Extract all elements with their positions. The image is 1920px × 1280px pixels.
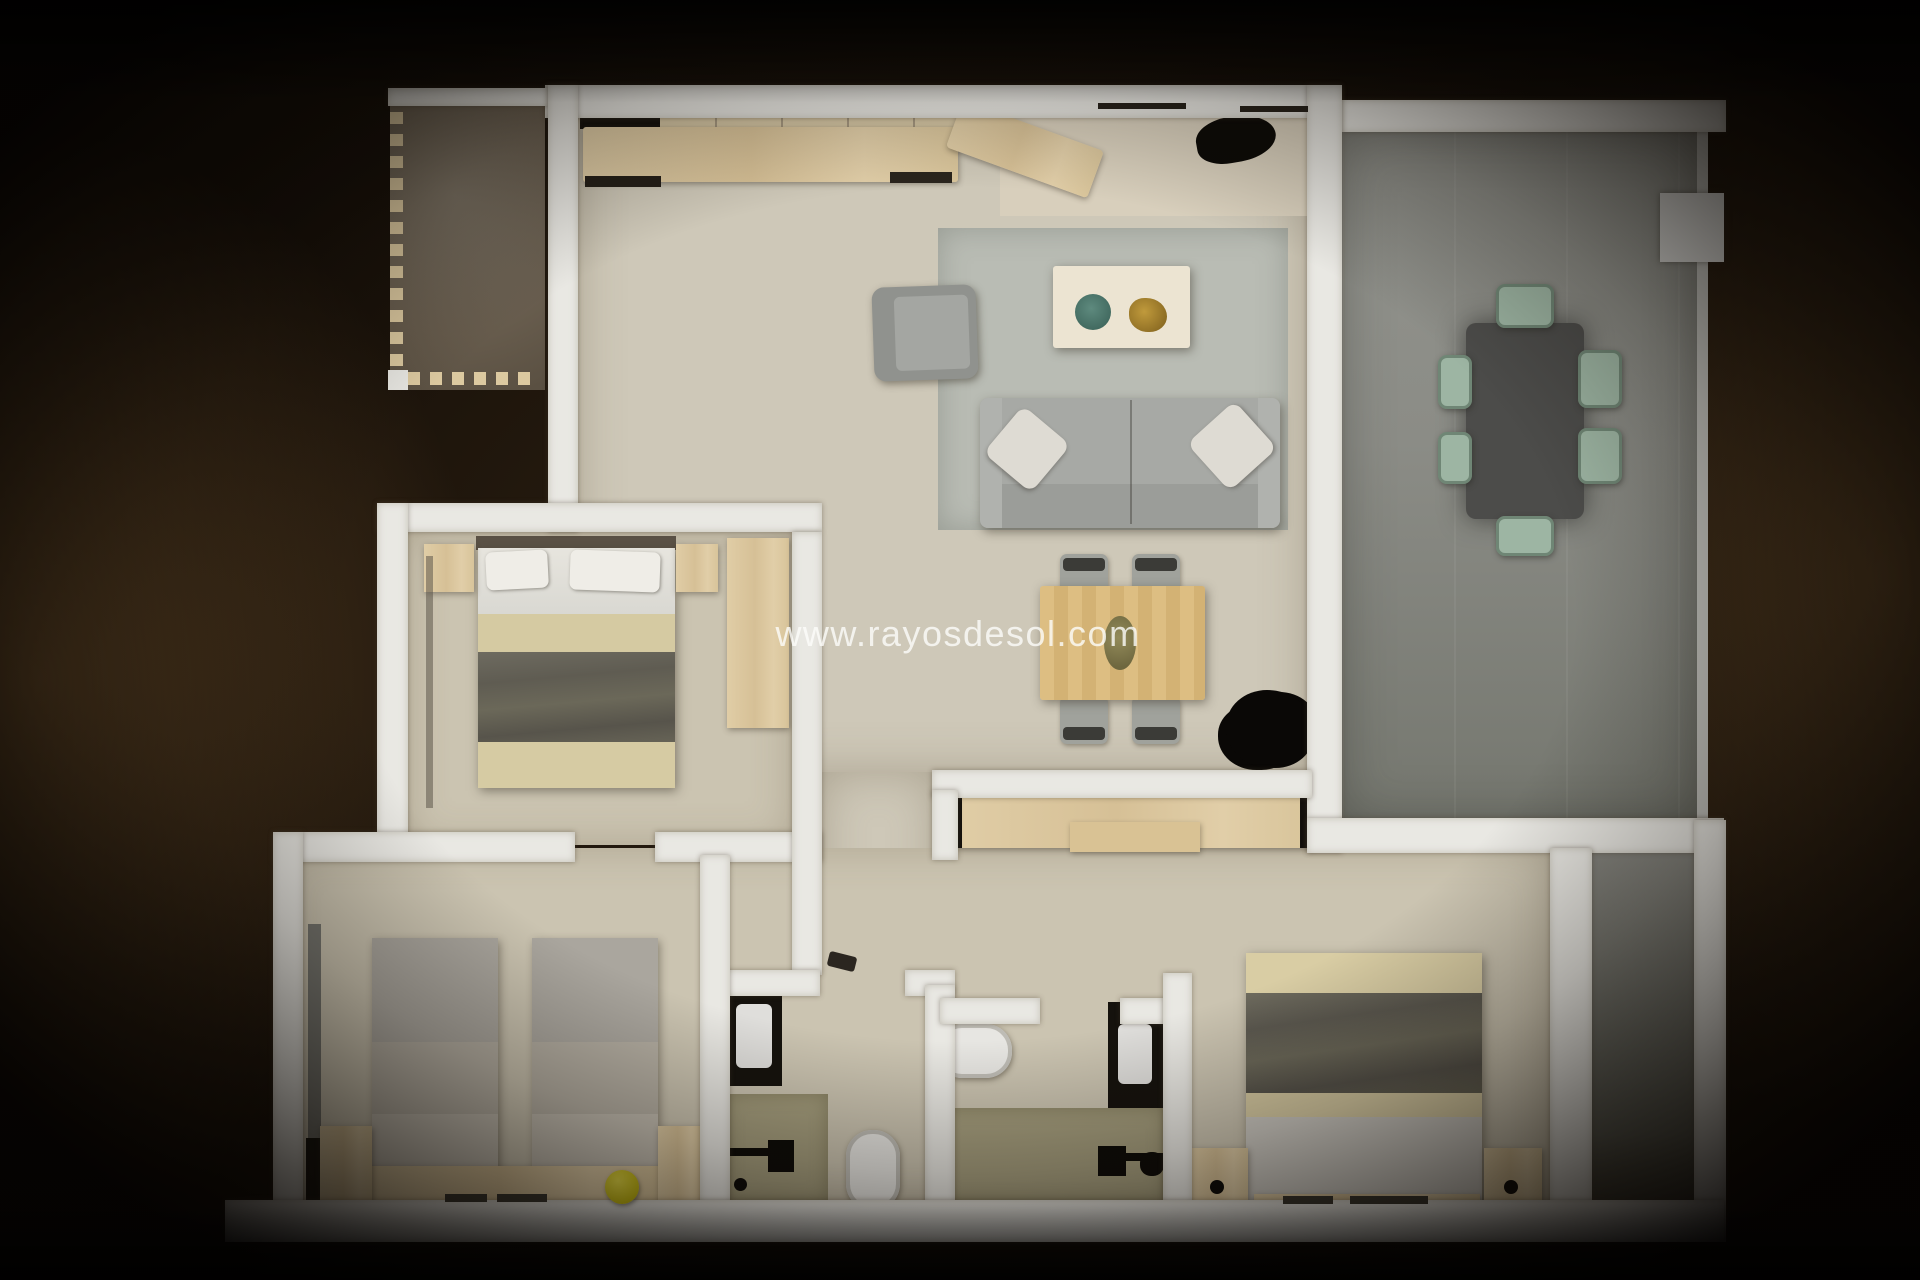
bedroom2-bed-left [372, 938, 498, 1172]
terrace-wall-unit [1660, 193, 1724, 262]
wall-living-terrace [1307, 85, 1342, 853]
bedroom2-nightstand-left [320, 1126, 372, 1202]
bathroom1-shower-tray [768, 1140, 794, 1172]
balcony-dash-left [390, 112, 403, 374]
yellow-ball [605, 1170, 639, 1204]
bathroom1-shower-arm [728, 1148, 770, 1156]
wall-balcony-top [388, 88, 548, 106]
bedroom2-foot-mark-2 [497, 1194, 547, 1202]
terrace-side-strip [1590, 853, 1694, 1205]
coffee-table [1053, 266, 1190, 348]
bathroom1-vanity [724, 984, 782, 1086]
bedroom2-bed-right [532, 938, 658, 1172]
wall-bathroom2-top-a [940, 998, 1040, 1024]
sofa [980, 398, 1280, 528]
terrace-chair-right-1 [1578, 350, 1622, 408]
bathroom1-drain-dot [734, 1178, 747, 1191]
watermark-text: www.rayosdesol.com [775, 613, 1140, 655]
wall-bedroom1-left [377, 503, 408, 843]
wall-terrace-bottom [1307, 818, 1724, 853]
wall-bedroom3-right [1550, 848, 1592, 1208]
terrace-chair-left-2 [1438, 432, 1472, 484]
terrace-chair-left-1 [1438, 355, 1472, 409]
wall-bedroom1-right [792, 532, 822, 975]
wall-bathroom1-left [700, 855, 730, 1205]
dining-chair-bottom-1 [1060, 696, 1108, 744]
bedroom3-nightstand-right [1484, 1148, 1542, 1202]
bathroom2-shower-tray [1098, 1146, 1126, 1176]
balcony-corner-post [388, 370, 408, 390]
bathroom2-fixture-blob [1140, 1152, 1164, 1176]
kitchen-backsplash-line-1 [1098, 103, 1186, 109]
teal-plate [1075, 294, 1111, 330]
bedroom3-headboard-mark-2 [1350, 1196, 1428, 1204]
bed-sand-top [1246, 953, 1482, 993]
bedroom3-bed [1246, 953, 1482, 1205]
twin-bed-pillow [532, 1114, 658, 1172]
armchair-seat [894, 294, 971, 371]
gold-decor [1129, 298, 1167, 332]
bedroom2-nightstand-right [658, 1126, 702, 1202]
wall-bathroom2-top-b [1120, 998, 1165, 1024]
kitchen-counter-end-left [585, 176, 661, 187]
bathroom1-basin [736, 1004, 772, 1068]
bedroom1-pillow-left [485, 549, 549, 590]
armchair [871, 284, 978, 382]
bedroom1-nightstand-right [676, 544, 718, 592]
twin-bed-mid [532, 1042, 658, 1114]
wall-bedroom1-top [377, 503, 822, 532]
wall-corridor-stub [932, 790, 958, 860]
bedroom1-pillow-right [569, 549, 660, 592]
twin-bed-pillow [372, 1114, 498, 1172]
bed-blanket [1246, 993, 1482, 1093]
wall-bedroom2-left [273, 832, 303, 1232]
wall-bed1-bed2-left [273, 832, 575, 862]
bed-pillow-zone [1246, 1117, 1482, 1205]
kitchen-backsplash-line-2 [1240, 106, 1308, 112]
balcony-dash-bottom [408, 372, 540, 385]
bedroom3-lamp-right [1504, 1180, 1518, 1194]
wall-terrace-top [1342, 100, 1726, 132]
twin-bed-top [372, 938, 498, 1042]
terrace-chair-bottom [1496, 516, 1554, 556]
twin-bed-mid [372, 1042, 498, 1114]
sofa-armrest-right [1258, 398, 1280, 528]
bedroom3-lamp-left [1210, 1180, 1224, 1194]
wall-top-main [545, 85, 1342, 118]
bathroom2-basin [1118, 1024, 1152, 1084]
bed-sand-low [1246, 1093, 1482, 1117]
dining-chair-bottom-2 [1132, 696, 1180, 744]
bedroom1-wall-shadow [426, 556, 433, 808]
wall-left-upper [548, 85, 578, 532]
sofa-center-seam [1130, 400, 1132, 524]
bed-sand-1 [478, 614, 675, 652]
wall-bathroom1-top-a [717, 970, 820, 996]
balcony-floor [390, 103, 545, 390]
bedroom3-nightstand-left [1190, 1148, 1248, 1202]
wall-bottom-outer [225, 1200, 1724, 1242]
terrace-chair-right-2 [1578, 428, 1622, 484]
terrace-chair-top [1496, 284, 1554, 328]
bathroom1-toilet [846, 1130, 900, 1210]
wall-corridor-bedroom3 [932, 770, 1312, 798]
bed-sand-2 [478, 742, 675, 788]
bedroom3-headboard-mark-1 [1283, 1196, 1333, 1204]
wall-bedroom3-left [1163, 973, 1192, 1205]
kitchen-counter-end-right [890, 172, 952, 183]
floor-plan-render: www.rayosdesol.com [0, 0, 1920, 1280]
terrace-table [1466, 323, 1584, 519]
twin-bed-top [532, 938, 658, 1042]
wall-outer-right-lower [1694, 820, 1726, 1242]
bedroom3-dresser-drawer [1070, 822, 1200, 852]
bed-blanket [478, 652, 675, 742]
bedroom2-foot-mark-1 [445, 1194, 487, 1202]
